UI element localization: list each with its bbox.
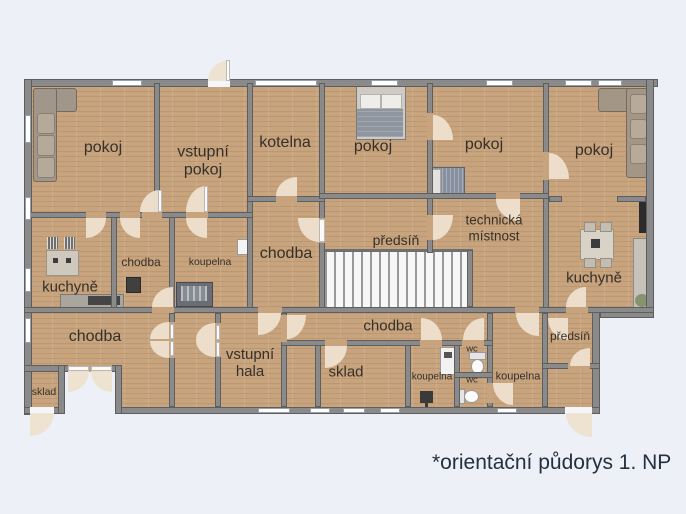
staircase	[322, 249, 473, 313]
window	[255, 80, 317, 86]
door-swing-icon	[566, 413, 592, 437]
wall	[115, 365, 122, 414]
room-label-koupelna-small: koupelna	[189, 256, 232, 268]
table-center	[591, 239, 600, 248]
table-center	[53, 258, 58, 263]
wall	[646, 79, 654, 318]
window	[25, 115, 31, 143]
room-label-wc-bottom: wc	[466, 376, 478, 387]
room-label-pokoj-top-center: pokoj	[354, 138, 392, 156]
door-leaf	[226, 60, 230, 81]
wall	[315, 341, 321, 407]
chair	[584, 258, 596, 268]
room-label-sklad-center: sklad	[328, 363, 363, 380]
window	[25, 318, 31, 343]
wall	[542, 313, 548, 407]
room-label-predsin-center: předsíň	[373, 232, 420, 248]
door-opening	[566, 307, 588, 313]
room-label-chodba-bottom-left: chodba	[69, 328, 122, 346]
door-swing-icon	[30, 413, 54, 436]
sofa-cushion	[37, 135, 55, 156]
sofa-cushion	[630, 94, 647, 114]
wall	[405, 341, 411, 407]
sofa-cushion	[37, 157, 55, 178]
room-label-pokoj-top-right: pokoj	[575, 142, 613, 160]
sofa-cushion	[37, 113, 55, 134]
sofa-cushion	[630, 119, 647, 139]
bed-pillow	[381, 94, 402, 109]
wall	[549, 196, 562, 202]
bathtub-inner	[181, 286, 207, 301]
door-opening	[487, 383, 493, 403]
chair	[600, 258, 612, 268]
window	[486, 80, 513, 86]
room-label-koupelna-right: koupelna	[496, 371, 541, 384]
door-leaf	[170, 324, 174, 339]
door-leaf	[319, 219, 325, 242]
window	[380, 408, 400, 413]
room-label-kuchyne-left: kuchyně	[42, 278, 98, 295]
room-label-vstupni-hala: vstupní hala	[215, 346, 285, 381]
door-leaf	[158, 190, 162, 212]
room-label-sklad-left: sklad	[32, 386, 57, 398]
chair	[47, 237, 58, 249]
door-leaf	[216, 325, 220, 340]
washer-dial	[444, 352, 452, 358]
window	[25, 268, 31, 292]
room-label-wc-top: wc	[466, 345, 478, 356]
chair	[584, 222, 596, 232]
chair	[600, 222, 612, 232]
wall	[58, 365, 65, 414]
window	[310, 408, 330, 413]
room-label-technicka-mistnost: technická místnost	[448, 212, 540, 243]
window	[258, 408, 290, 413]
window	[112, 80, 142, 86]
bed-pillow	[360, 94, 381, 109]
dining-table-left	[46, 250, 79, 276]
orientation-note: *orientační půdorys 1. NP	[432, 451, 671, 475]
door-opening	[276, 196, 297, 202]
door-opening	[142, 212, 162, 218]
window	[598, 80, 622, 86]
room-label-vstupni-pokoj: vstupní pokoj	[164, 144, 242, 181]
room-label-chodba-small: chodba	[121, 256, 160, 270]
room-label-koupelna-bottom: koupelna	[412, 371, 453, 383]
window	[343, 408, 365, 413]
window	[25, 197, 31, 220]
toilet	[464, 390, 479, 403]
room-label-pokoj-top-left: pokoj	[84, 139, 122, 157]
wall	[592, 310, 600, 414]
window	[497, 408, 517, 413]
door-opening	[152, 307, 174, 313]
door-opening	[420, 340, 442, 346]
appliance	[420, 391, 433, 403]
sofa-cushion	[630, 144, 647, 164]
window	[565, 80, 592, 86]
room-label-chodba-bottom-center: chodba	[363, 317, 412, 334]
wall	[617, 196, 646, 202]
room-label-kotelna: kotelna	[259, 134, 311, 152]
floor-plan-canvas: pokoj vstupní pokoj kotelna pokoj pokoj …	[0, 0, 686, 514]
door-leaf	[204, 186, 208, 212]
room-label-predsin-right: předsíň	[550, 330, 590, 344]
stove	[126, 277, 141, 293]
wall	[467, 250, 473, 307]
room-label-pokoj-top-center2: pokoj	[465, 136, 503, 154]
table-center	[66, 258, 71, 263]
wall	[24, 307, 654, 313]
door-leaf	[170, 341, 174, 356]
bed-blanket	[357, 109, 403, 137]
wall	[111, 212, 117, 313]
room-label-kuchyne-right: kuchyně	[566, 269, 622, 286]
chair	[64, 237, 75, 249]
window	[371, 80, 398, 86]
room-label-chodba-center: chodba	[260, 245, 313, 263]
